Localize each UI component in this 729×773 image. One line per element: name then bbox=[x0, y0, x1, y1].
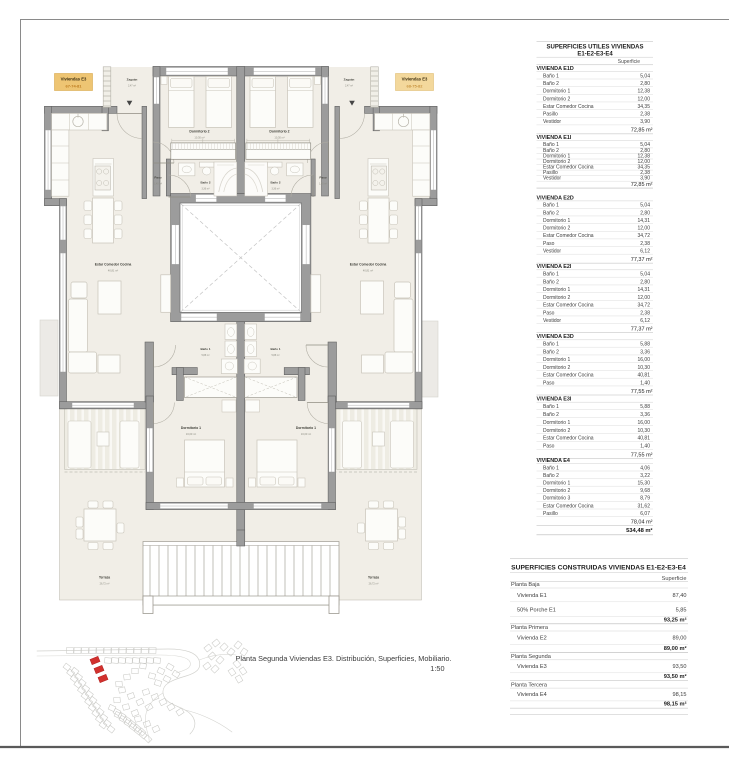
svg-text:Baño 1: Baño 1 bbox=[543, 203, 559, 209]
svg-text:16,00: 16,00 bbox=[637, 357, 650, 363]
svg-text:93,50 m²: 93,50 m² bbox=[664, 673, 687, 680]
svg-text:3,36 m²: 3,36 m² bbox=[271, 188, 279, 191]
svg-text:Planta Baja: Planta Baja bbox=[511, 582, 540, 588]
svg-text:Paso: Paso bbox=[543, 241, 555, 247]
svg-text:98,15 m²: 98,15 m² bbox=[664, 701, 687, 708]
svg-text:SUPERFICIES CONSTRUIDAS VIVIEN: SUPERFICIES CONSTRUIDAS VIVIENDAS E1-E2-… bbox=[511, 564, 686, 571]
svg-text:5,85: 5,85 bbox=[676, 607, 687, 613]
svg-text:Vestidor: Vestidor bbox=[543, 318, 561, 324]
svg-text:Planta Segunda Viviendas E3. D: Planta Segunda Viviendas E3. Distribució… bbox=[235, 654, 451, 663]
svg-text:Paso: Paso bbox=[543, 310, 555, 316]
svg-text:Vestidor: Vestidor bbox=[543, 249, 561, 255]
svg-text:Baño 2: Baño 2 bbox=[270, 181, 280, 185]
svg-text:534,48 m²: 534,48 m² bbox=[626, 527, 652, 534]
svg-text:Baño 1: Baño 1 bbox=[543, 73, 559, 79]
svg-text:Planta Tercera: Planta Tercera bbox=[511, 682, 548, 688]
svg-text:5,04: 5,04 bbox=[640, 272, 650, 278]
svg-text:4,06: 4,06 bbox=[640, 465, 650, 471]
svg-text:93,25 m²: 93,25 m² bbox=[664, 616, 687, 623]
svg-text:Vestidor: Vestidor bbox=[543, 119, 561, 125]
svg-text:Baño 1: Baño 1 bbox=[543, 272, 559, 278]
svg-text:Dormitorio 2: Dormitorio 2 bbox=[269, 130, 289, 134]
svg-text:Planta Segunda: Planta Segunda bbox=[511, 654, 552, 660]
svg-text:72,85 m²: 72,85 m² bbox=[631, 128, 653, 134]
svg-text:77,55 m²: 77,55 m² bbox=[631, 452, 653, 458]
svg-text:Dormitorio 1: Dormitorio 1 bbox=[543, 218, 570, 224]
svg-text:Superficie: Superficie bbox=[662, 576, 687, 582]
svg-text:16,00 m²: 16,00 m² bbox=[186, 432, 196, 436]
svg-text:VIVIENDA E1D: VIVIENDA E1D bbox=[537, 66, 574, 72]
svg-text:Planta Primera: Planta Primera bbox=[511, 625, 549, 631]
svg-text:26,72 m²: 26,72 m² bbox=[100, 583, 110, 586]
svg-text:Baño 1: Baño 1 bbox=[543, 465, 559, 471]
svg-text:Estar Comedor Cocina: Estar Comedor Cocina bbox=[543, 503, 594, 509]
svg-text:Estar Comedor Cocina: Estar Comedor Cocina bbox=[543, 233, 594, 239]
svg-text:89,00 m²: 89,00 m² bbox=[664, 645, 687, 652]
svg-text:2,38: 2,38 bbox=[640, 241, 650, 247]
svg-text:Baño 1: Baño 1 bbox=[543, 342, 559, 348]
svg-text:Superficie: Superficie bbox=[618, 59, 640, 65]
svg-text:93,50: 93,50 bbox=[673, 664, 687, 670]
svg-text:5,88 m²: 5,88 m² bbox=[271, 354, 279, 357]
svg-text:Baño 2: Baño 2 bbox=[543, 349, 559, 355]
svg-text:VIVIENDA E2D: VIVIENDA E2D bbox=[537, 195, 574, 201]
svg-text:Zaguán: Zaguán bbox=[127, 78, 138, 82]
svg-text:Paso: Paso bbox=[154, 176, 161, 180]
svg-text:16,00: 16,00 bbox=[637, 420, 650, 426]
svg-text:Pasillo: Pasillo bbox=[543, 511, 558, 517]
svg-text:Dormitorio 1: Dormitorio 1 bbox=[543, 89, 570, 95]
svg-text:1,40: 1,40 bbox=[640, 444, 650, 450]
svg-text:1,40 m²: 1,40 m² bbox=[319, 183, 327, 186]
svg-text:14,31: 14,31 bbox=[637, 218, 650, 224]
svg-text:Estar Comedor Cocina: Estar Comedor Cocina bbox=[543, 373, 594, 379]
svg-text:E1-E2-E3-E4: E1-E2-E3-E4 bbox=[577, 51, 613, 57]
svg-text:Dormitorio 2: Dormitorio 2 bbox=[543, 295, 570, 301]
svg-text:Dormitorio 3: Dormitorio 3 bbox=[543, 496, 570, 502]
svg-text:6,12: 6,12 bbox=[640, 249, 650, 255]
svg-text:Estar Comedor Cocina: Estar Comedor Cocina bbox=[95, 263, 132, 267]
svg-text:Dormitorio 1: Dormitorio 1 bbox=[543, 481, 570, 487]
svg-text:12,38: 12,38 bbox=[637, 89, 650, 95]
svg-text:Paso: Paso bbox=[543, 380, 555, 386]
svg-text:Vivienda E2: Vivienda E2 bbox=[517, 636, 547, 642]
svg-text:12,00: 12,00 bbox=[637, 295, 650, 301]
svg-text:50% Porche E1: 50% Porche E1 bbox=[517, 607, 556, 613]
svg-text:40,81: 40,81 bbox=[637, 373, 650, 379]
svg-text:Pasillo: Pasillo bbox=[543, 112, 558, 118]
svg-text:3,36: 3,36 bbox=[640, 349, 650, 355]
svg-text:3,36: 3,36 bbox=[640, 412, 650, 418]
svg-text:9,68: 9,68 bbox=[640, 488, 650, 494]
svg-text:12,00: 12,00 bbox=[637, 96, 650, 102]
svg-text:Vivienda E4: Vivienda E4 bbox=[517, 692, 547, 698]
svg-text:77,37 m²: 77,37 m² bbox=[631, 327, 653, 333]
svg-text:3,90: 3,90 bbox=[640, 176, 650, 182]
svg-text:Viviendas E3: Viviendas E3 bbox=[402, 77, 428, 82]
svg-text:67-74-81: 67-74-81 bbox=[65, 84, 82, 89]
svg-text:Baño 2: Baño 2 bbox=[543, 279, 559, 285]
svg-text:Baño 1: Baño 1 bbox=[543, 404, 559, 410]
svg-text:2,80: 2,80 bbox=[640, 81, 650, 87]
svg-text:3,36 m²: 3,36 m² bbox=[201, 188, 209, 191]
svg-text:VIVIENDA E1I: VIVIENDA E1I bbox=[537, 135, 572, 141]
svg-text:5,88 m²: 5,88 m² bbox=[201, 354, 209, 357]
svg-text:Zaguán: Zaguán bbox=[344, 78, 355, 82]
svg-text:98,15: 98,15 bbox=[673, 692, 687, 698]
svg-text:77,55 m²: 77,55 m² bbox=[631, 389, 653, 395]
svg-text:Vivienda E1: Vivienda E1 bbox=[517, 593, 547, 599]
svg-text:Dormitorio 1: Dormitorio 1 bbox=[543, 420, 570, 426]
svg-text:VIVIENDA E3D: VIVIENDA E3D bbox=[537, 334, 574, 340]
svg-text:6,12: 6,12 bbox=[640, 318, 650, 324]
svg-text:Baño 2: Baño 2 bbox=[543, 412, 559, 418]
svg-text:Paso: Paso bbox=[319, 176, 326, 180]
svg-text:26,72 m²: 26,72 m² bbox=[369, 583, 379, 586]
svg-text:6,07: 6,07 bbox=[640, 511, 650, 517]
svg-text:5,88: 5,88 bbox=[640, 342, 650, 348]
svg-text:Estar Comedor Cocina: Estar Comedor Cocina bbox=[543, 104, 594, 110]
svg-text:10,30 m²: 10,30 m² bbox=[274, 136, 284, 140]
svg-text:Dormitorio 1: Dormitorio 1 bbox=[543, 287, 570, 293]
svg-text:Dormitorio 2: Dormitorio 2 bbox=[543, 96, 570, 102]
svg-text:2,80: 2,80 bbox=[640, 279, 650, 285]
svg-text:10,30 m²: 10,30 m² bbox=[194, 136, 204, 140]
svg-text:Estar Comedor Cocina: Estar Comedor Cocina bbox=[350, 263, 387, 267]
svg-text:Estar Comedor Cocina: Estar Comedor Cocina bbox=[543, 303, 594, 309]
svg-text:10,30: 10,30 bbox=[637, 428, 650, 434]
svg-text:Paso: Paso bbox=[543, 444, 555, 450]
svg-text:1,40: 1,40 bbox=[640, 380, 650, 386]
svg-text:16,00 m²: 16,00 m² bbox=[301, 432, 311, 436]
svg-text:VIVIENDA E4: VIVIENDA E4 bbox=[537, 458, 570, 464]
svg-text:2,38: 2,38 bbox=[640, 310, 650, 316]
svg-text:Vivienda E3: Vivienda E3 bbox=[517, 664, 547, 670]
svg-text:14,31: 14,31 bbox=[637, 287, 650, 293]
svg-text:Baño 2: Baño 2 bbox=[543, 473, 559, 479]
svg-text:5,04: 5,04 bbox=[640, 73, 650, 79]
svg-text:Dormitorio 2: Dormitorio 2 bbox=[543, 226, 570, 232]
svg-text:5,88: 5,88 bbox=[640, 404, 650, 410]
svg-text:8,79: 8,79 bbox=[640, 496, 650, 502]
svg-text:40,81 m²: 40,81 m² bbox=[108, 269, 118, 273]
svg-text:10,30: 10,30 bbox=[637, 365, 650, 371]
svg-text:Baño 2: Baño 2 bbox=[543, 210, 559, 216]
svg-text:VIVIENDA E2I: VIVIENDA E2I bbox=[537, 264, 572, 270]
svg-text:3,22: 3,22 bbox=[640, 473, 650, 479]
svg-text:68-75-82: 68-75-82 bbox=[406, 84, 423, 89]
svg-text:Viviendas E3: Viviendas E3 bbox=[61, 77, 87, 82]
svg-text:40,81: 40,81 bbox=[637, 436, 650, 442]
svg-text:1,40 m²: 1,40 m² bbox=[154, 183, 162, 186]
svg-text:3,90: 3,90 bbox=[640, 119, 650, 125]
svg-text:87,40: 87,40 bbox=[673, 593, 687, 599]
svg-text:Dormitorio 2: Dormitorio 2 bbox=[543, 488, 570, 494]
svg-text:SUPERFICIES UTILES VIVIENDAS: SUPERFICIES UTILES VIVIENDAS bbox=[546, 44, 643, 50]
svg-text:72,85 m²: 72,85 m² bbox=[631, 182, 653, 188]
svg-text:Dormitorio 2: Dormitorio 2 bbox=[543, 428, 570, 434]
svg-text:Dormitorio 2: Dormitorio 2 bbox=[189, 130, 209, 134]
svg-text:Dormitorio 1: Dormitorio 1 bbox=[296, 426, 316, 430]
svg-text:89,00: 89,00 bbox=[673, 636, 687, 642]
svg-text:2,80: 2,80 bbox=[640, 210, 650, 216]
svg-text:Baño 2: Baño 2 bbox=[200, 181, 210, 185]
svg-text:Baño 1: Baño 1 bbox=[270, 347, 280, 351]
svg-text:34,35: 34,35 bbox=[637, 104, 650, 110]
svg-text:15,30: 15,30 bbox=[637, 481, 650, 487]
svg-text:78,04 m²: 78,04 m² bbox=[631, 519, 653, 525]
svg-text:2,47 m²: 2,47 m² bbox=[128, 85, 136, 88]
svg-text:31,62: 31,62 bbox=[637, 503, 650, 509]
svg-text:1:50: 1:50 bbox=[430, 664, 444, 673]
svg-text:Dormitorio 2: Dormitorio 2 bbox=[543, 365, 570, 371]
svg-text:Vestidor: Vestidor bbox=[543, 176, 561, 182]
svg-text:5,04: 5,04 bbox=[640, 203, 650, 209]
svg-text:34,72: 34,72 bbox=[637, 233, 650, 239]
svg-text:Terraza: Terraza bbox=[368, 576, 379, 580]
svg-text:2,38: 2,38 bbox=[640, 112, 650, 118]
svg-text:Baño 1: Baño 1 bbox=[200, 347, 210, 351]
svg-text:Dormitorio 1: Dormitorio 1 bbox=[181, 426, 201, 430]
svg-text:Baño 2: Baño 2 bbox=[543, 81, 559, 87]
svg-text:Estar Comedor Cocina: Estar Comedor Cocina bbox=[543, 436, 594, 442]
svg-text:34,72: 34,72 bbox=[637, 303, 650, 309]
svg-text:VIVIENDA E3I: VIVIENDA E3I bbox=[537, 397, 572, 403]
svg-text:Terraza: Terraza bbox=[99, 576, 110, 580]
svg-text:40,81 m²: 40,81 m² bbox=[363, 269, 373, 273]
svg-text:77,37 m²: 77,37 m² bbox=[631, 257, 653, 263]
svg-text:Dormitorio 1: Dormitorio 1 bbox=[543, 357, 570, 363]
svg-text:12,00: 12,00 bbox=[637, 226, 650, 232]
svg-text:2,47 m²: 2,47 m² bbox=[345, 85, 353, 88]
